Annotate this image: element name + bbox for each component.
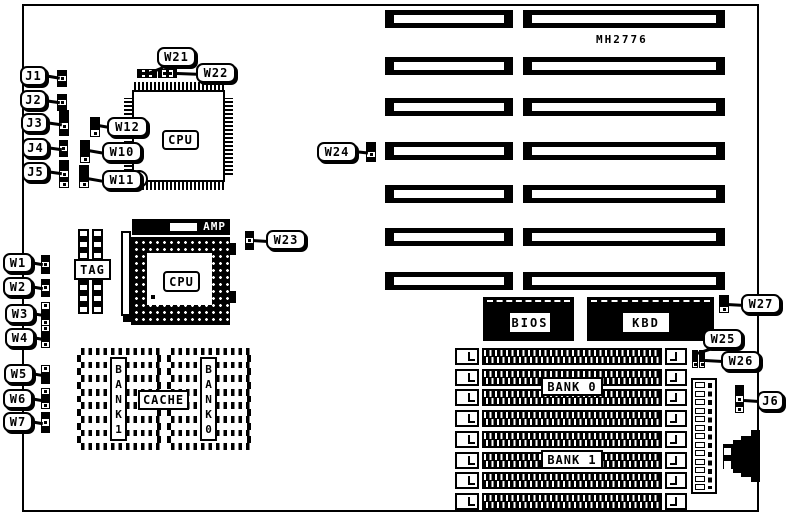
slot-contact-strip [532,62,716,70]
callout-label-w11: W11 [102,170,142,190]
slot-contact-strip [532,103,716,111]
slot-contact-strip [394,233,504,241]
callout-label-w24: W24 [317,142,357,162]
keyboard-din-connector [751,430,760,482]
simm-pins-top [484,474,660,480]
part-number: MH2776 [596,33,648,46]
jumper-pin [60,182,68,187]
simm-pins-bottom [486,357,660,363]
latch-glyph [468,435,475,444]
slot-contact-strip [394,147,504,155]
cache-pad-row [77,348,161,355]
kbd-chip-label: KBD [623,313,669,332]
power-connector-pin [695,450,705,456]
callout-label-j2: J2 [20,90,47,110]
callout-label-j5: J5 [22,162,49,182]
jumper-pin [42,342,49,347]
tag-pad [80,285,87,290]
simm-socket [455,472,687,489]
latch-glyph [670,393,677,402]
expansion-slot [523,98,725,116]
qfp-pins-bottom [134,182,224,190]
latch-glyph [468,414,475,423]
simm-bank1-label: BANK 1 [541,450,603,469]
power-connector-pin [695,442,705,448]
latch-glyph [670,414,677,423]
simm-pins-top [484,495,660,501]
expansion-slot [385,98,513,116]
jumper-pin [700,362,704,367]
zif-lever [121,231,131,316]
qfp-pins-top [134,82,224,90]
power-connector-pin [695,416,705,422]
callout-label-w6: W6 [3,389,33,409]
slot-contact-strip [394,277,504,285]
latch-glyph [670,476,677,485]
motherboard-jumper-diagram: MH2776 CPU AMP CPU TAG BANK1 BANK0 CACHE… [0,0,786,520]
jumper-pin [60,129,68,135]
keyboard-din-step1 [741,436,752,477]
tag-pad [94,253,101,258]
power-connector-pin [695,476,705,482]
expansion-slot [385,272,513,290]
jumper-pin [42,426,49,432]
cache-pad-row [77,443,161,450]
callout-label-w3: W3 [5,304,35,324]
callout-label-w5: W5 [4,364,34,384]
amp-socket-bar: AMP [132,219,230,235]
keyboard-din-step2 [733,440,742,473]
callout-label-w2: W2 [3,277,33,297]
simm-right-latch [665,493,687,510]
tag-pad [94,285,101,290]
power-connector-pin [695,399,705,405]
cache-bank0-vertical-label: BANK0 [200,357,217,441]
cache-bank1-vertical-label: BANK1 [110,357,127,441]
callout-label-j1: J1 [20,66,47,86]
simm-left-latch [455,369,479,386]
qfp-pins-right [225,98,233,175]
jumper-pin [720,307,728,312]
slot-contact-strip [394,15,504,23]
jumper-pin [91,130,99,136]
expansion-slot [385,142,513,160]
latch-glyph [468,373,475,382]
callout-label-w27: W27 [741,294,781,314]
simm-left-latch [455,348,479,365]
expansion-slot [523,228,725,246]
callout-label-w12: W12 [107,117,148,137]
simm-right-latch [665,410,687,427]
power-connector-pin [695,382,705,388]
callout-label-w4: W4 [5,328,35,348]
simm-pin-bar [482,348,662,365]
bios-chip-label: BIOS [510,313,550,332]
latch-glyph [670,435,677,444]
simm-socket [455,493,687,510]
simm-pin-bar [482,410,662,427]
jumper-pin [736,407,743,412]
simm-socket [455,410,687,427]
jumper-pin [58,81,66,86]
simm-right-latch [665,369,687,386]
w4-header-pins [41,325,50,348]
jumper-pin [173,70,176,77]
slot-contact-strip [532,15,716,23]
expansion-slot [385,185,513,203]
simm-pins-bottom [486,419,660,425]
slot-contact-strip [532,233,716,241]
latch-glyph [468,352,475,361]
tag-pad [80,307,87,312]
jumper-pin [693,362,697,367]
simm-left-latch [455,493,479,510]
kbd-chip-notch-line [591,300,710,302]
power-connector-pin [695,391,705,397]
simm-pins-top [484,350,660,356]
simm-socket [455,348,687,365]
tag-pad [94,231,101,236]
tag-pad [94,307,101,312]
pga-cpu-label: CPU [163,271,200,292]
tag-chip-label: TAG [74,259,111,280]
qfp-cpu-label: CPU [162,130,199,150]
simm-pin-bar [482,493,662,510]
slot-contact-strip [394,190,504,198]
jumper-pin [81,157,89,162]
simm-pins-top [484,412,660,418]
callout-label-j4: J4 [22,138,49,158]
jumper-pin [42,403,49,408]
socket-tab-top [229,243,236,255]
expansion-slot [523,272,725,290]
expansion-slot [523,142,725,160]
simm-right-latch [665,472,687,489]
latch-glyph [670,373,677,382]
callout-label-w25: W25 [703,329,743,349]
simm-pins-top [484,433,660,439]
callout-label-j3: J3 [21,113,48,133]
jumper-pin [42,267,49,273]
jumper-pin [80,182,88,187]
jumper-pin [60,151,67,156]
tag-pad [80,253,87,258]
simm-pins-bottom [486,481,660,487]
jumper-pin [42,377,49,383]
simm-right-latch [665,431,687,448]
jumper-pin [367,157,375,162]
power-connector-pin [695,408,705,414]
amp-bar-window [170,223,197,231]
latch-glyph [468,476,475,485]
simm-socket [455,431,687,448]
din-pin-top [724,448,731,455]
callout-label-w26: W26 [721,351,761,371]
simm-right-latch [665,389,687,406]
expansion-slot [385,228,513,246]
simm-pins-bottom [486,398,660,404]
callout-label-w10: W10 [102,142,142,162]
socket-tab-bottom [229,291,236,303]
latch-glyph [670,352,677,361]
power-connector-key-strip [708,383,712,489]
simm-pin-bar [482,431,662,448]
cache-pad-row [167,443,251,450]
din-pin-bottom [724,461,731,469]
pin1-marker [151,295,155,299]
bios-chip-notch-line [487,300,570,302]
j6-header-pins [735,385,744,413]
power-connector-pin [695,484,705,490]
expansion-slot [385,10,513,28]
expansion-slot [523,10,725,28]
power-connector-pin [695,425,705,431]
slot-contact-strip [532,147,716,155]
expansion-slot [385,57,513,75]
callout-label-w1: W1 [3,253,33,273]
latch-glyph [468,393,475,402]
expansion-slot [523,185,725,203]
latch-glyph [468,497,475,506]
simm-right-latch [665,452,687,469]
simm-right-latch [665,348,687,365]
callout-label-w22: W22 [196,63,236,83]
slot-contact-strip [532,277,716,285]
expansion-slot [523,57,725,75]
slot-contact-strip [532,190,716,198]
simm-left-latch [455,472,479,489]
callout-label-j6: J6 [757,391,784,411]
simm-pin-bar [482,472,662,489]
simm-bank0-label: BANK 0 [541,377,603,396]
tag-pad [80,231,87,236]
simm-left-latch [455,389,479,406]
amp-brand-label: AMP [203,220,226,233]
latch-glyph [670,456,677,465]
cache-pad-row [167,348,251,355]
simm-left-latch [455,431,479,448]
simm-left-latch [455,452,479,469]
power-connector [691,378,717,494]
callout-label-w7: W7 [3,412,33,432]
power-connector-pin [695,459,705,465]
callout-label-w21: W21 [157,47,196,67]
latch-glyph [670,497,677,506]
jumper-pin [246,243,253,249]
jumper-pin [42,291,49,296]
cache-label: CACHE [138,390,189,410]
tag-pad [80,242,87,247]
tag-pad [94,242,101,247]
tag-pad [94,296,101,301]
slot-contact-strip [394,103,504,111]
simm-pins-bottom [486,502,660,508]
power-connector-pin [695,467,705,473]
power-connector-pin [695,433,705,439]
slot-contact-strip [394,62,504,70]
simm-pins-bottom [486,440,660,446]
tag-pad [80,296,87,301]
latch-glyph [468,456,475,465]
simm-left-latch [455,410,479,427]
w22-header-pins [158,69,177,78]
callout-label-w23: W23 [266,230,306,250]
